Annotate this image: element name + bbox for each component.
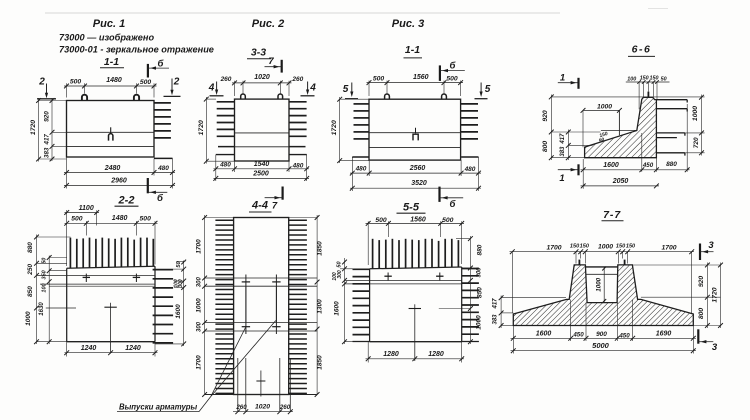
svg-text:Рис. 2: Рис. 2 [252, 18, 284, 30]
svg-text:1600: 1600 [175, 304, 182, 319]
svg-text:7-7: 7-7 [603, 209, 621, 221]
svg-text:300: 300 [196, 321, 202, 332]
svg-text:500: 500 [375, 217, 387, 224]
svg-text:1240: 1240 [125, 345, 141, 352]
svg-text:260: 260 [220, 76, 232, 83]
svg-text:450: 450 [618, 333, 630, 340]
svg-text:1850: 1850 [316, 355, 323, 370]
svg-text:800: 800 [698, 308, 705, 320]
svg-text:4: 4 [309, 83, 316, 94]
svg-text:73000 — изображено: 73000 — изображено [59, 33, 154, 43]
svg-text:417: 417 [493, 298, 499, 310]
svg-text:417: 417 [44, 134, 51, 146]
svg-text:260: 260 [291, 76, 303, 83]
svg-text:150: 150 [570, 243, 580, 249]
svg-text:383: 383 [493, 314, 499, 325]
svg-text:3: 3 [708, 240, 714, 251]
svg-text:920: 920 [44, 111, 51, 122]
svg-text:920: 920 [698, 276, 705, 288]
svg-text:50: 50 [176, 261, 182, 267]
svg-text:1720: 1720 [712, 287, 719, 302]
svg-text:1: 1 [560, 73, 565, 84]
svg-text:1020: 1020 [254, 74, 270, 81]
svg-text:500: 500 [71, 215, 83, 222]
svg-text:2050: 2050 [612, 178, 629, 185]
svg-text:1700: 1700 [195, 355, 202, 370]
svg-text:Рис. 3: Рис. 3 [392, 18, 424, 30]
svg-text:1600: 1600 [603, 162, 619, 169]
svg-text:880: 880 [27, 242, 34, 253]
svg-text:300: 300 [178, 279, 184, 288]
svg-text:1300: 1300 [316, 299, 323, 314]
svg-text:1700: 1700 [546, 244, 561, 251]
svg-text:480: 480 [292, 163, 304, 170]
svg-text:2560: 2560 [409, 165, 426, 172]
svg-text:1000: 1000 [597, 103, 612, 110]
svg-text:1700: 1700 [195, 239, 202, 254]
svg-text:5: 5 [343, 84, 349, 95]
svg-text:5: 5 [485, 84, 491, 95]
svg-text:500: 500 [446, 75, 458, 82]
svg-text:1700: 1700 [661, 244, 676, 251]
svg-text:1280: 1280 [428, 351, 444, 358]
svg-text:1720: 1720 [30, 120, 37, 135]
svg-text:1690: 1690 [656, 331, 672, 338]
svg-text:880: 880 [666, 161, 677, 168]
svg-text:7: 7 [268, 56, 274, 67]
svg-text:300: 300 [196, 277, 202, 288]
svg-text:1100: 1100 [79, 205, 94, 212]
svg-text:1600: 1600 [536, 331, 552, 338]
svg-text:2-2: 2-2 [118, 195, 135, 207]
svg-text:720: 720 [693, 137, 700, 148]
svg-text:920: 920 [542, 110, 549, 122]
svg-text:1720: 1720 [331, 120, 338, 135]
svg-text:1000: 1000 [195, 298, 202, 313]
svg-text:2500: 2500 [252, 171, 269, 178]
svg-text:383: 383 [560, 146, 566, 157]
svg-text:500: 500 [373, 75, 385, 82]
svg-text:500: 500 [70, 79, 82, 86]
svg-text:2: 2 [173, 77, 180, 88]
svg-text:850: 850 [27, 286, 34, 297]
svg-text:800: 800 [542, 141, 549, 153]
svg-text:5-5: 5-5 [403, 202, 420, 214]
svg-text:1480: 1480 [112, 215, 128, 222]
svg-text:417: 417 [560, 133, 566, 145]
svg-text:1000: 1000 [598, 244, 613, 251]
svg-text:1560: 1560 [413, 74, 429, 81]
svg-text:150: 150 [580, 243, 590, 249]
svg-text:3: 3 [712, 342, 718, 353]
svg-text:1850: 1850 [316, 241, 323, 256]
svg-text:1240: 1240 [81, 345, 97, 352]
svg-text:500: 500 [140, 79, 152, 86]
svg-text:300: 300 [337, 270, 343, 279]
svg-text:2: 2 [38, 77, 45, 88]
svg-text:100: 100 [627, 76, 636, 82]
svg-text:Выпуски арматуры: Выпуски арматуры [119, 403, 198, 412]
svg-text:300: 300 [477, 267, 483, 278]
svg-text:1-1: 1-1 [104, 56, 119, 68]
svg-text:150: 150 [616, 243, 626, 249]
svg-text:50: 50 [337, 261, 343, 267]
svg-text:50: 50 [42, 258, 48, 264]
svg-text:250: 250 [27, 263, 34, 275]
svg-text:880: 880 [477, 244, 484, 255]
svg-text:150: 150 [640, 76, 649, 82]
svg-text:1000: 1000 [692, 106, 699, 121]
svg-text:6-6: 6-6 [632, 44, 652, 56]
svg-text:850: 850 [477, 287, 484, 298]
svg-text:500: 500 [140, 215, 152, 222]
svg-text:450: 450 [572, 332, 584, 339]
svg-text:3520: 3520 [411, 180, 427, 187]
svg-text:5000: 5000 [592, 341, 610, 350]
svg-text:7: 7 [272, 201, 278, 212]
svg-text:73000-01 - зеркальное отражени: 73000-01 - зеркальное отражение [59, 45, 214, 55]
svg-text:100: 100 [42, 283, 48, 292]
svg-text:1480: 1480 [106, 77, 122, 84]
svg-text:383: 383 [44, 147, 51, 158]
svg-text:1000: 1000 [476, 315, 483, 330]
svg-text:260: 260 [235, 404, 247, 411]
svg-text:1000: 1000 [596, 277, 603, 291]
svg-text:Рис. 1: Рис. 1 [93, 18, 125, 30]
svg-text:1000: 1000 [25, 311, 32, 326]
svg-text:1020: 1020 [255, 403, 270, 410]
svg-text:900: 900 [596, 331, 607, 338]
svg-text:480: 480 [464, 166, 476, 173]
svg-text:4-4: 4-4 [251, 200, 268, 212]
svg-text:1: 1 [559, 173, 564, 184]
svg-text:500: 500 [442, 217, 454, 224]
svg-text:480: 480 [219, 161, 231, 168]
svg-text:1720: 1720 [198, 120, 205, 135]
svg-text:150: 150 [650, 76, 659, 82]
svg-text:3-3: 3-3 [251, 47, 266, 59]
svg-text:260: 260 [279, 404, 291, 411]
svg-text:1-1: 1-1 [405, 44, 420, 56]
svg-text:1540: 1540 [254, 161, 270, 168]
svg-text:1560: 1560 [410, 217, 426, 224]
svg-text:4: 4 [208, 83, 215, 94]
svg-text:2480: 2480 [104, 165, 121, 172]
svg-text:2960: 2960 [110, 178, 127, 185]
svg-text:450: 450 [642, 162, 654, 169]
svg-text:50: 50 [661, 76, 667, 82]
svg-text:150: 150 [626, 243, 636, 249]
svg-text:1600: 1600 [334, 301, 341, 316]
svg-text:1630: 1630 [39, 302, 45, 316]
svg-text:480: 480 [355, 166, 367, 173]
svg-text:1280: 1280 [383, 351, 399, 358]
svg-text:350: 350 [42, 270, 48, 279]
svg-text:480: 480 [157, 165, 169, 172]
